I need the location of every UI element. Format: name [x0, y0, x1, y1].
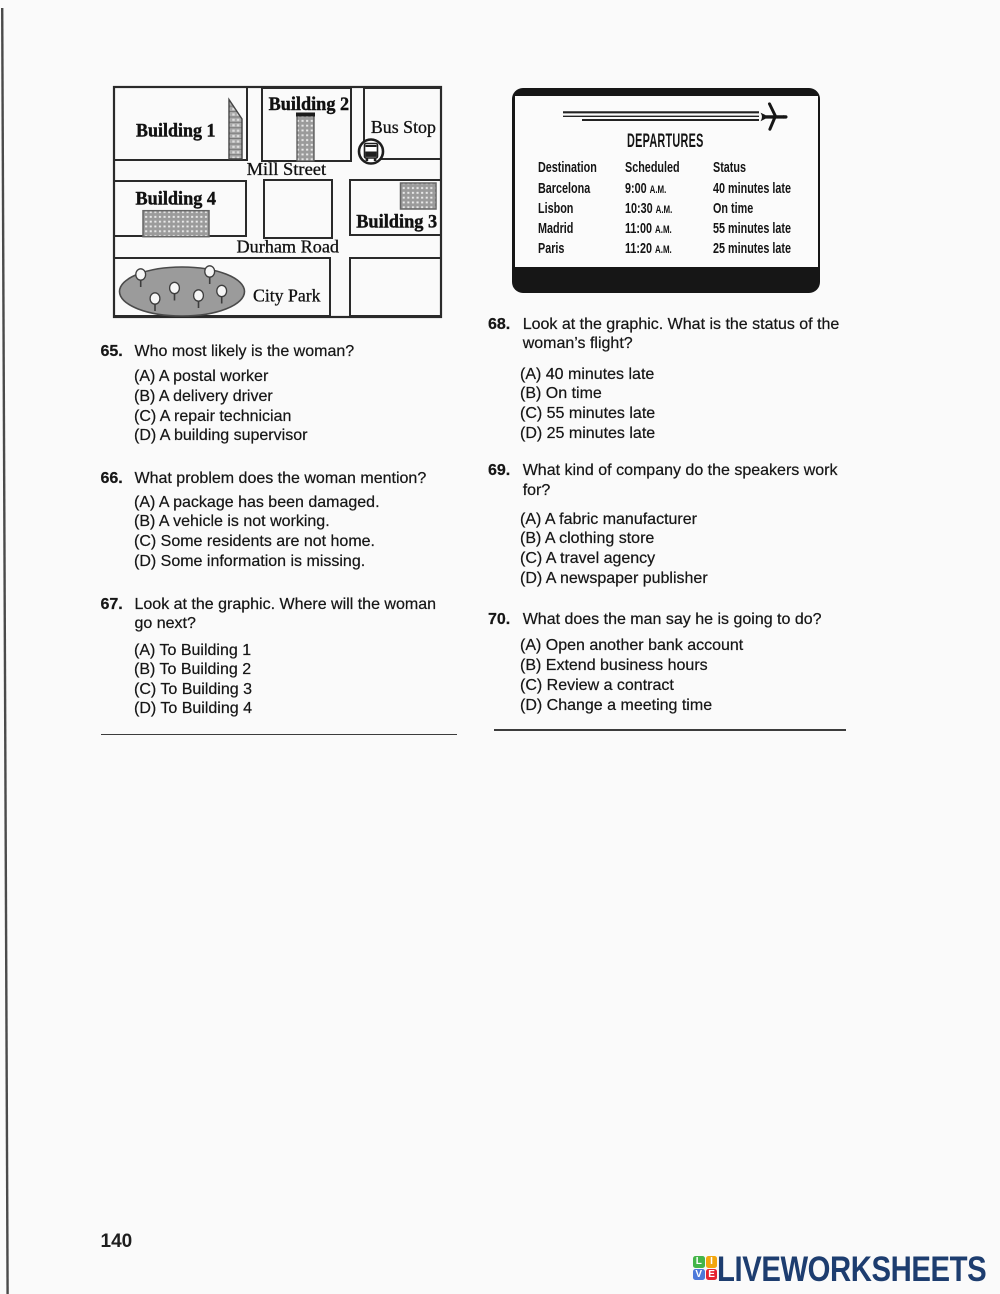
svg-text:Durham Road: Durham Road [237, 236, 340, 256]
svg-text:City Park: City Park [253, 286, 321, 306]
svg-text:Building 2: Building 2 [269, 94, 350, 115]
svg-text:Mill Street: Mill Street [247, 159, 327, 179]
svg-text:Building 3: Building 3 [356, 211, 437, 232]
svg-text:Bus Stop: Bus Stop [371, 117, 436, 137]
svg-text:Building 4: Building 4 [136, 189, 217, 210]
svg-text:Building 1: Building 1 [136, 121, 216, 142]
